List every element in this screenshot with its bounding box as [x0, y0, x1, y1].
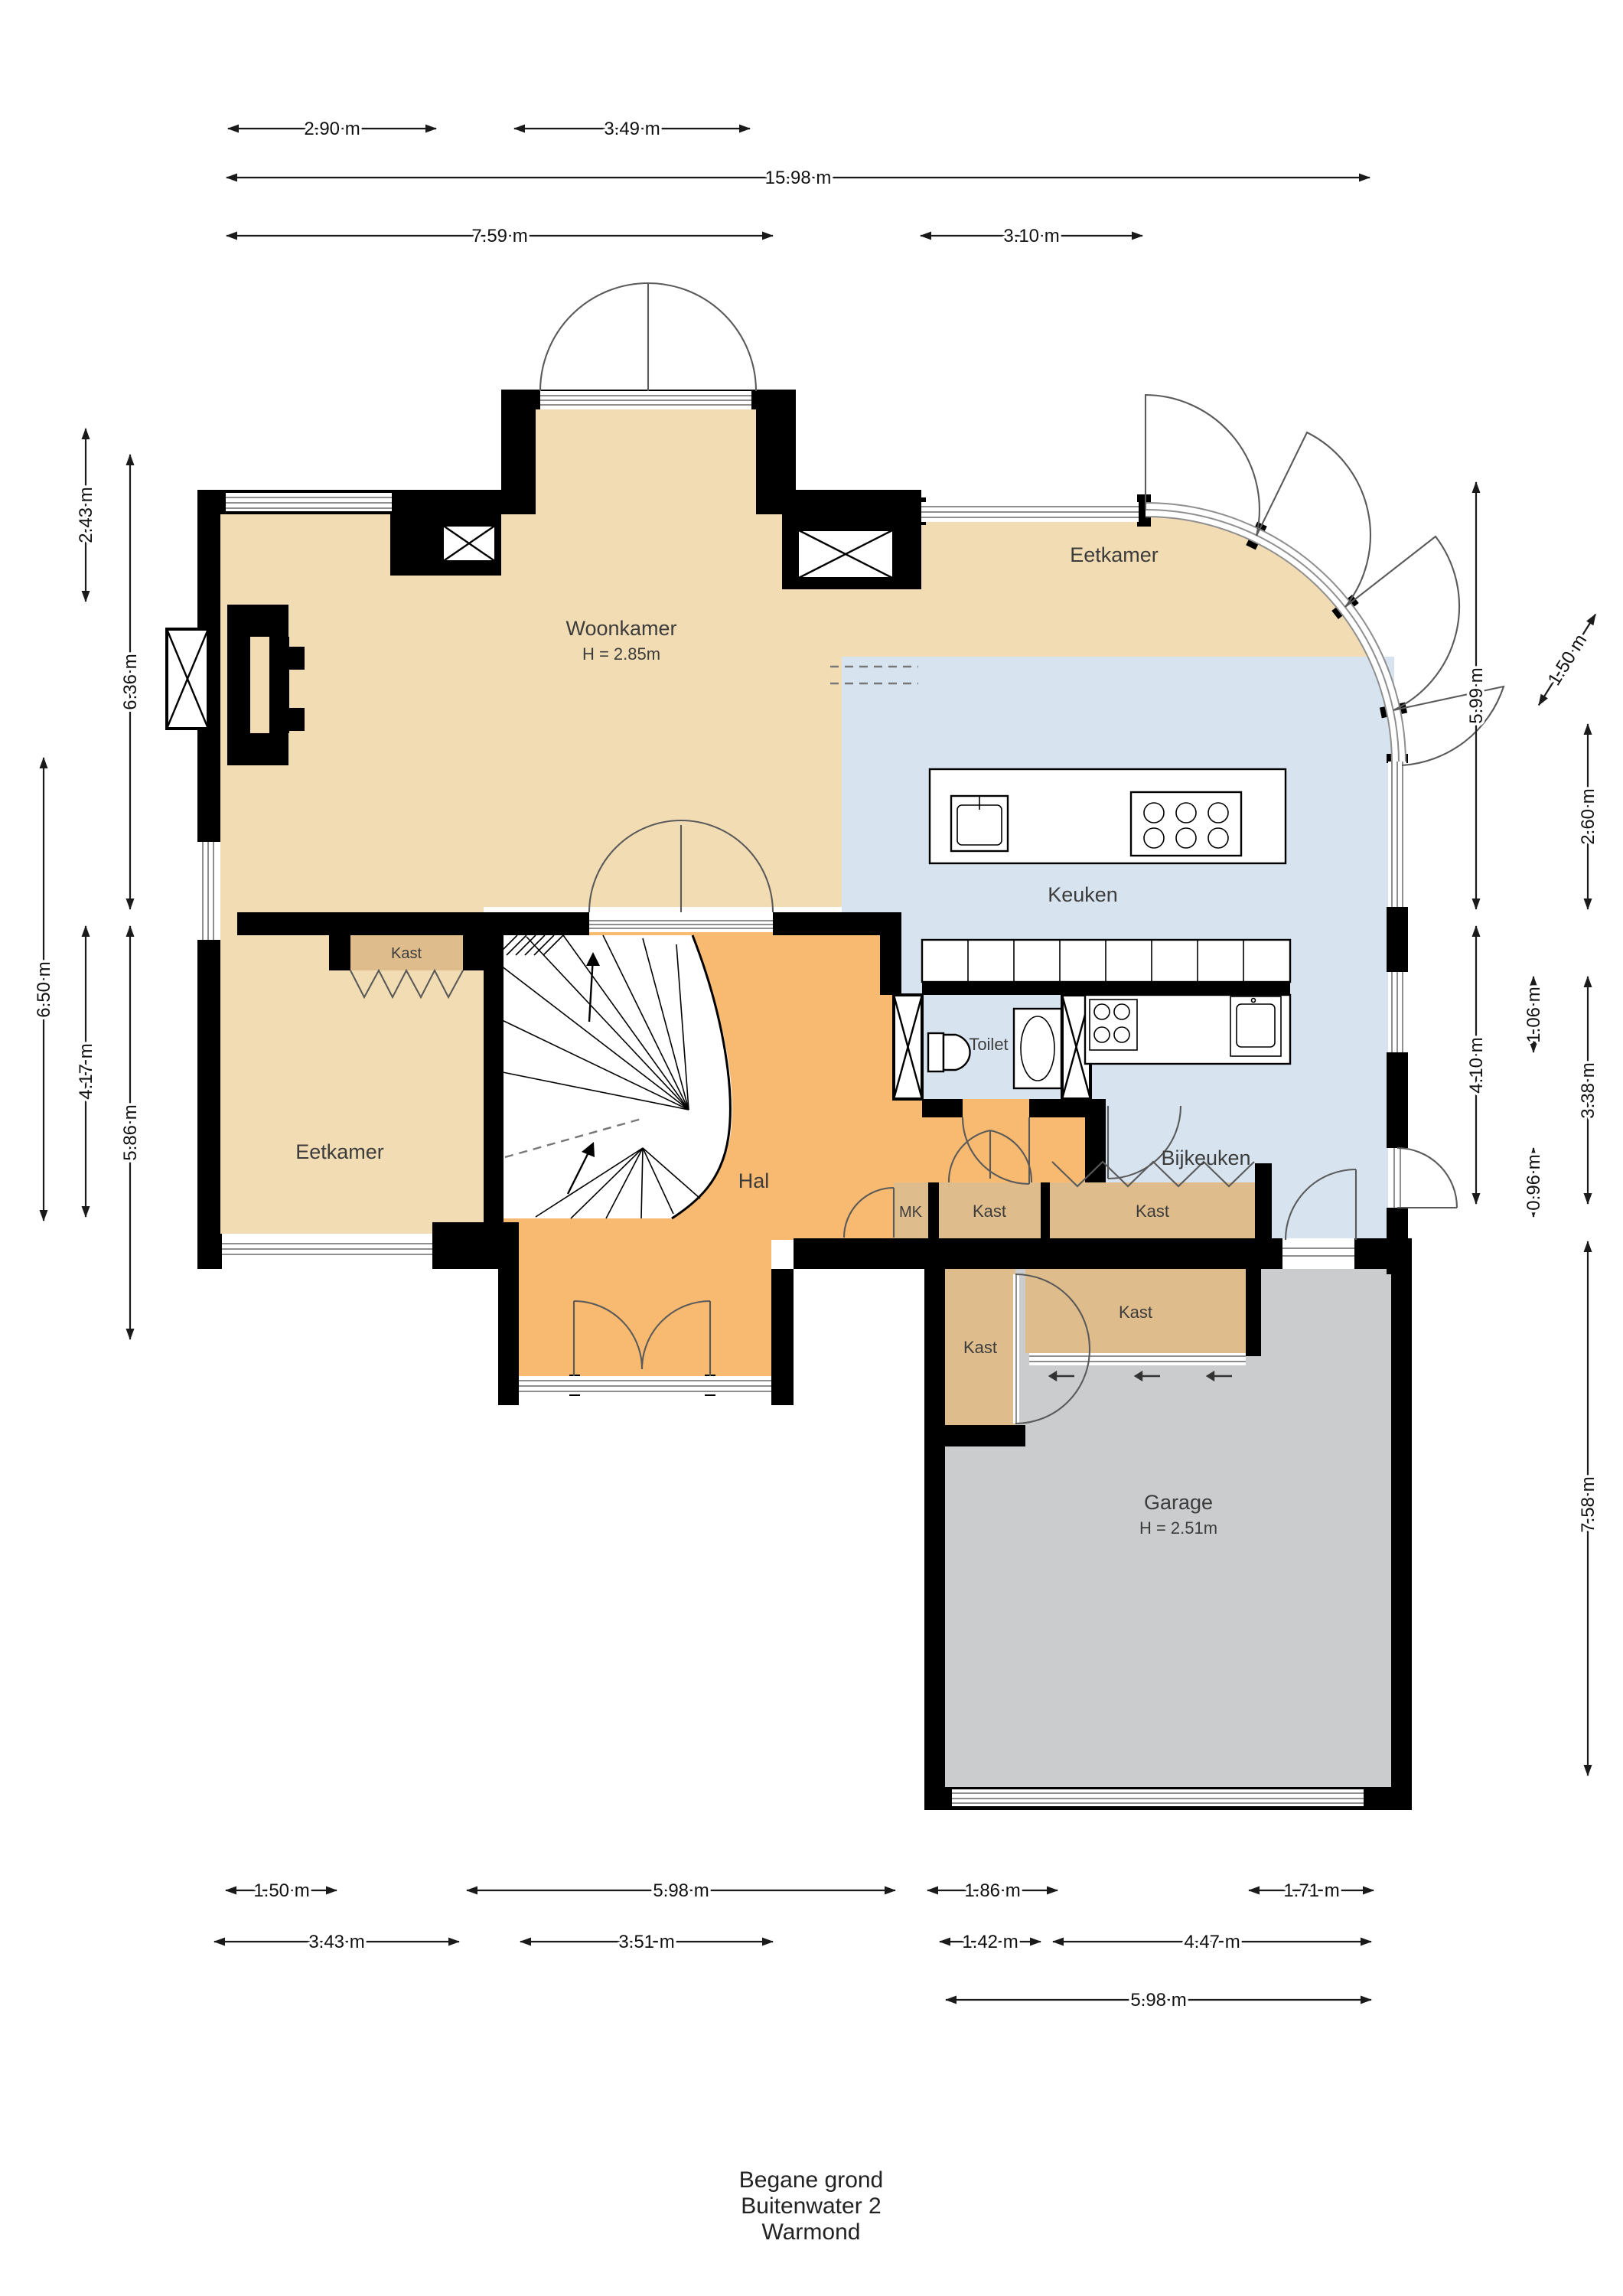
door-sill	[1388, 1148, 1406, 1208]
label-kast-bijkeuken: Kast	[1136, 1202, 1169, 1221]
label-kast-garage-tall: Kast	[963, 1338, 997, 1357]
plan-title-address: Buitenwater 2	[741, 2193, 881, 2219]
plan-title-floor: Begane grond	[739, 2167, 884, 2193]
window	[1388, 762, 1406, 907]
closet-sill	[1013, 1274, 1019, 1424]
label-mk: MK	[899, 1204, 923, 1221]
window	[222, 1238, 432, 1259]
shaft-icon	[442, 525, 496, 562]
label-woonkamer: Woonkamer	[565, 617, 676, 640]
dimension-label: 5.98 m	[653, 1880, 709, 1901]
dimension-label: 1.71 m	[1283, 1880, 1339, 1901]
dimension-label: 1.42 m	[962, 1932, 1018, 1952]
entrance-sill	[519, 1376, 771, 1394]
cooktop-icon	[1131, 792, 1241, 856]
window	[1388, 972, 1406, 1052]
label-toilet: Toilet	[969, 1035, 1008, 1054]
floorplan-drawing: Woonkamer H = 2.85m Eetkamer Keuken Eetk…	[0, 0, 1623, 2296]
closet-sill	[1029, 1353, 1246, 1365]
window	[226, 493, 392, 511]
dimension-label: 5.98 m	[1130, 1990, 1186, 2011]
shaft-icon	[797, 530, 894, 579]
dimension-label: 7.58 m	[1578, 1476, 1599, 1532]
label-garage-height: H = 2.51m	[1139, 1518, 1217, 1538]
dimension-label: 6.36 m	[120, 654, 141, 709]
label-eetkamer-left: Eetkamer	[295, 1140, 384, 1163]
stairs	[496, 935, 732, 1218]
label-bijkeuken: Bijkeuken	[1161, 1146, 1250, 1169]
label-eetkamer-top: Eetkamer	[1070, 543, 1159, 566]
dimension-label: 3.38 m	[1578, 1062, 1599, 1118]
dimension-label: 3.49 m	[604, 119, 660, 139]
dimension-label: 6.50 m	[34, 961, 54, 1017]
dimension-label: 5.86 m	[120, 1104, 141, 1160]
dimension-label: 4.10 m	[1466, 1037, 1487, 1093]
label-garage: Garage	[1144, 1491, 1213, 1514]
door-sill	[1282, 1241, 1354, 1266]
room-hal-strip2	[880, 1182, 894, 1238]
window	[199, 842, 219, 940]
dimension-label: 1.86 m	[964, 1880, 1020, 1901]
floorplan-page: Woonkamer H = 2.85m Eetkamer Keuken Eetk…	[0, 0, 1623, 2296]
interior-door-sill	[589, 917, 773, 932]
room-woonkamer-floor	[220, 514, 842, 907]
room-hal-vestibule	[519, 1240, 771, 1378]
door-sill	[540, 391, 751, 409]
dimension-label: 1.50 m	[253, 1880, 309, 1901]
label-kast-eetkamer: Kast	[391, 945, 422, 962]
toilet-icon	[928, 1033, 970, 1071]
dimension-label: 3.43 m	[308, 1932, 364, 1952]
dimension-label: 2.43 m	[76, 487, 96, 543]
dimension-label: 1.06 m	[1524, 987, 1544, 1042]
dimension-label: 4.17 m	[76, 1043, 96, 1099]
garage-door	[952, 1789, 1364, 1806]
kitchen-counter	[922, 940, 1290, 982]
dimension-label: 4.47 m	[1184, 1932, 1240, 1952]
dimension-label: 2.60 m	[1578, 788, 1599, 844]
chimney-icon	[167, 629, 208, 729]
dimension-label: 7.59 m	[471, 226, 527, 246]
label-woonkamer-height: H = 2.85m	[582, 644, 660, 664]
dimension-label: 3.10 m	[1003, 226, 1059, 246]
label-keuken: Keuken	[1048, 883, 1118, 906]
plan-title-city: Warmond	[762, 2219, 861, 2245]
washbasin-icon	[1014, 1009, 1061, 1088]
dimension-label: 5.99 m	[1466, 667, 1487, 723]
room-hal-strip	[880, 991, 894, 1099]
shaft-icon	[894, 995, 922, 1099]
dimension-label: 2.90 m	[304, 119, 360, 139]
label-kast-garage-wide: Kast	[1119, 1303, 1152, 1322]
dimension-label: 0.96 m	[1524, 1154, 1544, 1210]
window	[921, 502, 1139, 522]
label-hal: Hal	[738, 1169, 770, 1192]
room-woonkamer-bay-floor	[536, 409, 756, 514]
bijkeuken-counter	[1085, 995, 1290, 1064]
sink-icon	[951, 796, 1008, 851]
dimension-label: 3.51 m	[618, 1932, 674, 1952]
label-kast-hal: Kast	[973, 1202, 1006, 1221]
dimension-label: 15.98 m	[765, 168, 832, 188]
